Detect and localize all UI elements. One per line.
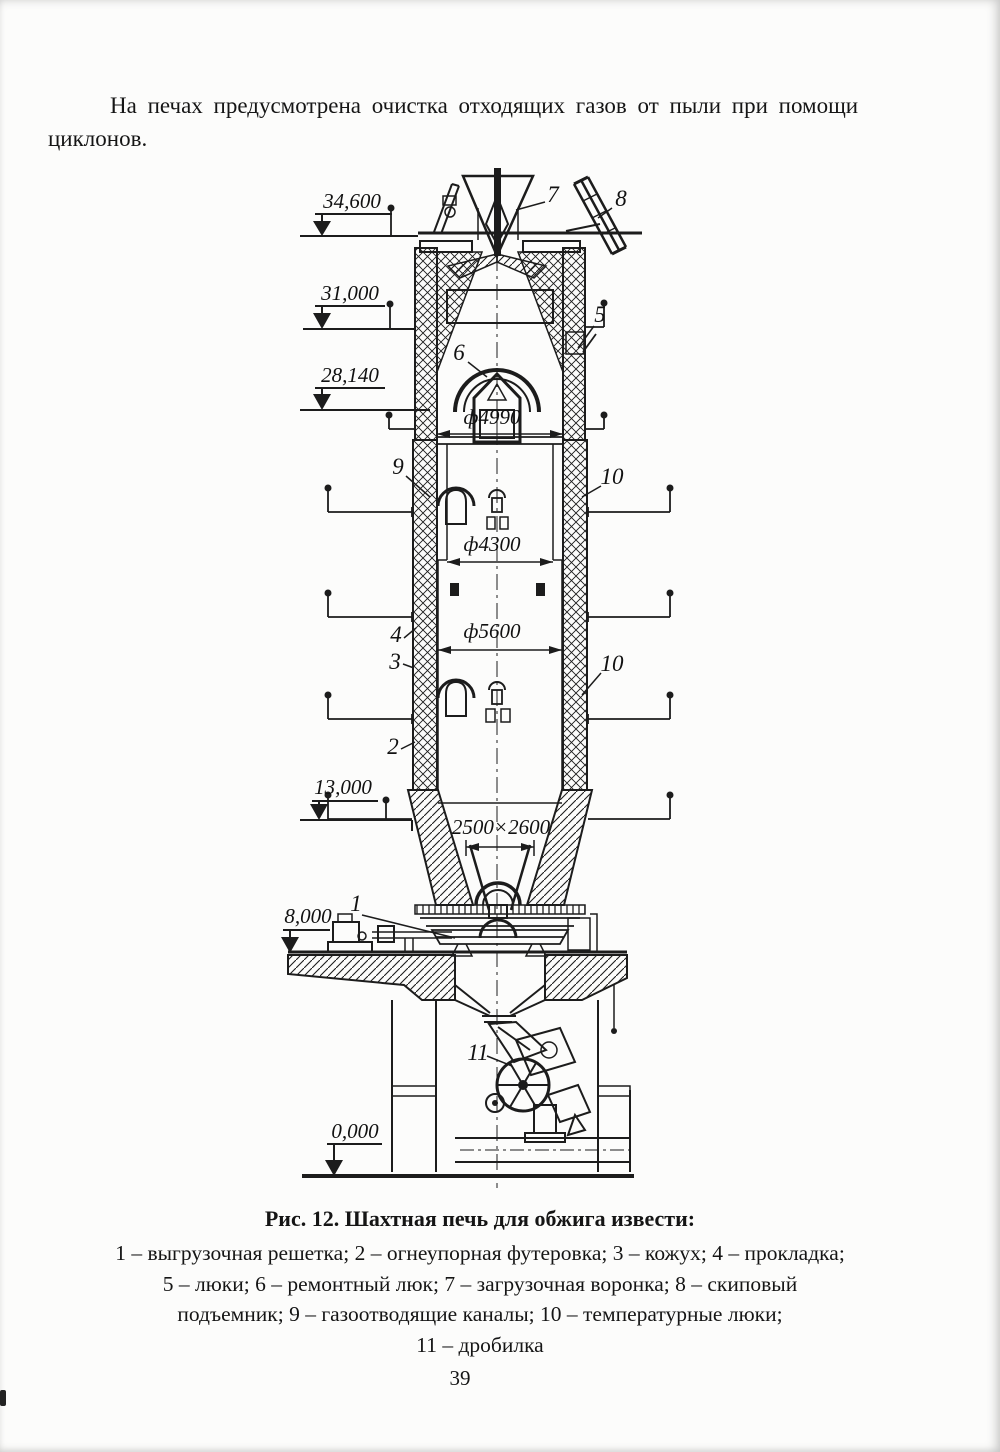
callout-10a: 10 — [582, 464, 624, 497]
callout-4-label: 4 — [390, 622, 402, 647]
callout-11: 11 — [467, 1040, 512, 1066]
dimension-opening: 2500×2600 — [452, 815, 551, 856]
legend-line-4: 11 – дробилка — [0, 1330, 960, 1361]
dimension-opening-label: 2500×2600 — [452, 815, 551, 839]
callout-10a-label: 10 — [601, 464, 625, 489]
elevation-28140-label: 28,140 — [321, 363, 379, 387]
callout-1-label: 1 — [350, 891, 362, 916]
elevation-8000-label: 8,000 — [284, 904, 332, 928]
elevation-0000-label: 0,000 — [331, 1119, 379, 1143]
legend-line-1: 1 – выгрузочная решетка; 2 – огнеупорная… — [0, 1238, 960, 1269]
callout-3-label: 3 — [388, 649, 401, 674]
callout-10b-label: 10 — [601, 651, 625, 676]
gas-channel-hatches — [438, 488, 545, 722]
callout-3: 3 — [388, 649, 414, 674]
bracket-left-3 — [325, 692, 413, 725]
elevation-31000-label: 31,000 — [320, 281, 379, 305]
paragraph-line-2: циклонов. — [48, 122, 896, 155]
dimension-4990-label: ф4990 — [464, 405, 521, 429]
dimension-4300: ф4300 — [447, 532, 553, 566]
callout-10b: 10 — [582, 651, 624, 695]
elevation-marks: 34,600 31,000 28,140 13,000 — [281, 189, 430, 1176]
dimension-4300-label: ф4300 — [464, 532, 521, 556]
bracket-right-4 — [588, 792, 674, 820]
callout-11-label: 11 — [467, 1040, 488, 1065]
callout-5-label: 5 — [594, 302, 606, 327]
bracket-left-2 — [325, 590, 413, 623]
callout-2: 2 — [387, 734, 415, 759]
paragraph-line-1: На печах предусмотрена очистка отходящих… — [48, 89, 896, 122]
bracket-28140-left — [386, 412, 415, 430]
dimension-5600-label: ф5600 — [464, 619, 521, 643]
legend-line-2: 5 – люки; 6 – ремонтный люк; 7 – загрузо… — [0, 1269, 960, 1300]
dimension-5600: ф5600 — [438, 619, 562, 654]
page-number: 39 — [0, 1366, 920, 1391]
callout-7-label: 7 — [547, 182, 560, 207]
scanned-page: На печах предусмотрена очистка отходящих… — [0, 0, 1000, 1452]
dimension-labels: ф4990 ф4300 ф5600 2500×2600 — [437, 405, 563, 856]
callout-2-label: 2 — [387, 734, 399, 759]
callout-6-label: 6 — [453, 340, 465, 365]
crusher — [486, 1028, 590, 1142]
elevation-13000: 13,000 — [300, 775, 412, 831]
figure-caption: Рис. 12. Шахтная печь для обжига извести… — [0, 1206, 960, 1232]
bracket-right-1 — [588, 485, 674, 518]
elevation-34600-label: 34,600 — [322, 189, 381, 213]
paragraph: На печах предусмотрена очистка отходящих… — [48, 89, 896, 155]
shaft-kiln-diagram: 34,600 31,000 28,140 13,000 — [0, 160, 1000, 1200]
elevation-28140: 28,140 — [300, 363, 430, 410]
scan-artifact — [0, 1390, 6, 1406]
elevation-34600: 34,600 — [313, 189, 395, 236]
figure-legend: 1 – выгрузочная решетка; 2 – огнеупорная… — [0, 1238, 960, 1360]
bracket-28140-right — [586, 412, 608, 430]
elevation-13000-label: 13,000 — [314, 775, 372, 799]
callout-9-label: 9 — [392, 454, 404, 479]
bracket-right-2 — [588, 590, 674, 623]
elevation-0000: 0,000 — [325, 1119, 382, 1176]
elevation-8000: 8,000 — [281, 904, 332, 953]
bracket-left-1 — [325, 485, 413, 518]
callout-8-label: 8 — [615, 186, 627, 211]
elevation-31000: 31,000 — [303, 281, 415, 344]
bracket-right-3 — [588, 692, 674, 725]
legend-line-3: подъемник; 9 – газоотводящие каналы; 10 … — [0, 1299, 960, 1330]
